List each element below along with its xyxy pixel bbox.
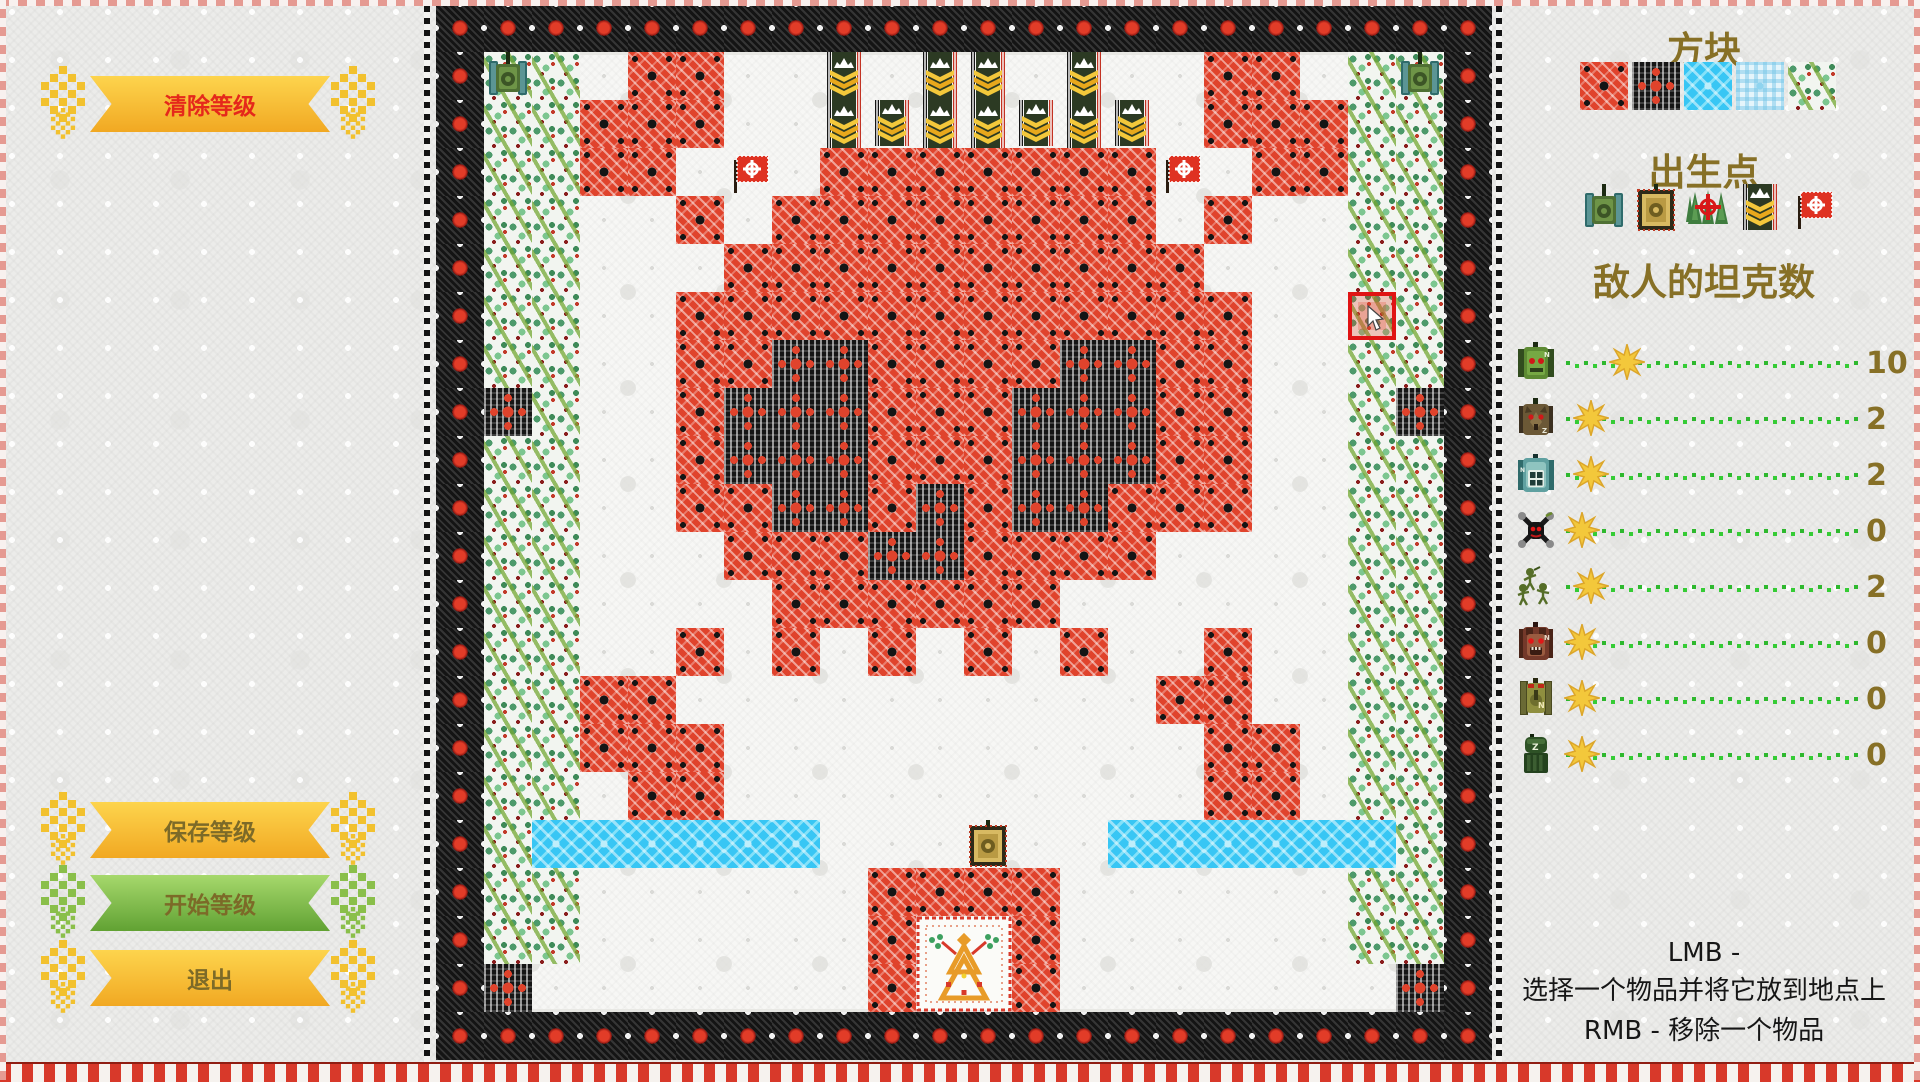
trees-tile[interactable]: [1396, 148, 1444, 196]
brick-tile[interactable]: [868, 580, 916, 628]
steel-tile[interactable]: [1108, 436, 1156, 484]
brick-tile[interactable]: [1156, 676, 1204, 724]
brick-tile[interactable]: [868, 628, 916, 676]
svg-text:N: N: [1544, 634, 1550, 642]
banner-short-sprite[interactable]: [1012, 100, 1060, 148]
water-tile[interactable]: [1300, 820, 1348, 868]
brick-tile[interactable]: [1060, 628, 1108, 676]
brick-tile[interactable]: [1012, 340, 1060, 388]
brick-tile[interactable]: [724, 244, 772, 292]
block-palette: [1580, 62, 1836, 110]
brick-tile[interactable]: [1012, 964, 1060, 1012]
brick-tile[interactable]: [868, 388, 916, 436]
brick-tile[interactable]: [916, 436, 964, 484]
brick-tile[interactable]: [1108, 292, 1156, 340]
trees-tile[interactable]: [1348, 868, 1396, 916]
steel-tile[interactable]: [916, 532, 964, 580]
brick-tile[interactable]: [772, 532, 820, 580]
enemy-row-teal-tank: N2: [1516, 452, 1916, 500]
trees-tile[interactable]: [1396, 820, 1444, 868]
steel-tile[interactable]: [1396, 964, 1444, 1012]
brick-tile[interactable]: [1012, 580, 1060, 628]
banner-tall-sprite[interactable]: [964, 52, 1012, 152]
brick-tile[interactable]: [772, 292, 820, 340]
water-tile[interactable]: [1156, 820, 1204, 868]
brick-tile[interactable]: [1204, 676, 1252, 724]
spawn-icon-ally-tank[interactable]: [1632, 184, 1680, 232]
brick-tile[interactable]: [1300, 148, 1348, 196]
enemy-count-slider[interactable]: [1566, 417, 1858, 424]
trees-tile[interactable]: [1348, 388, 1396, 436]
brick-tile[interactable]: [724, 292, 772, 340]
brick-tile[interactable]: [868, 340, 916, 388]
brick-tile[interactable]: [1012, 532, 1060, 580]
brick-tile[interactable]: [868, 196, 916, 244]
spawn-icon-banner[interactable]: [1736, 184, 1784, 232]
brick-tile[interactable]: [628, 772, 676, 820]
brick-tile[interactable]: [1156, 340, 1204, 388]
steel-tile[interactable]: [1060, 388, 1108, 436]
brick-tile[interactable]: [820, 532, 868, 580]
trees-tile[interactable]: [532, 100, 580, 148]
brick-tile[interactable]: [1060, 292, 1108, 340]
trees-tile[interactable]: [532, 484, 580, 532]
palette-tile-steel[interactable]: [1632, 62, 1680, 110]
brick-tile[interactable]: [820, 292, 868, 340]
trees-tile[interactable]: [1348, 196, 1396, 244]
trees-tile[interactable]: [1348, 628, 1396, 676]
steel-tile[interactable]: [1012, 388, 1060, 436]
brick-tile[interactable]: [820, 244, 868, 292]
trees-tile[interactable]: [532, 724, 580, 772]
slider-star-handle[interactable]: [1609, 344, 1645, 380]
brick-tile[interactable]: [676, 628, 724, 676]
trees-tile[interactable]: [1396, 580, 1444, 628]
trees-tile[interactable]: [1396, 100, 1444, 148]
trees-tile[interactable]: [484, 484, 532, 532]
flag-sprite[interactable]: [724, 148, 772, 196]
enemy-icon-bear-tank: N: [1516, 622, 1556, 662]
brick-tile[interactable]: [1252, 100, 1300, 148]
brick-tile[interactable]: [676, 436, 724, 484]
brick-tile[interactable]: [580, 148, 628, 196]
brick-tile[interactable]: [1252, 772, 1300, 820]
brick-tile[interactable]: [964, 532, 1012, 580]
map-border-left: [436, 4, 484, 1060]
brick-tile[interactable]: [1204, 484, 1252, 532]
brick-tile[interactable]: [964, 868, 1012, 916]
trees-tile[interactable]: [532, 148, 580, 196]
brick-tile[interactable]: [964, 388, 1012, 436]
brick-tile[interactable]: [820, 148, 868, 196]
brick-tile[interactable]: [868, 148, 916, 196]
brick-tile[interactable]: [964, 580, 1012, 628]
steel-tile[interactable]: [1060, 436, 1108, 484]
steel-tile[interactable]: [772, 484, 820, 532]
trees-tile[interactable]: [1396, 868, 1444, 916]
svg-text:N: N: [1538, 701, 1545, 710]
brick-tile[interactable]: [1252, 148, 1300, 196]
trees-tile[interactable]: [532, 436, 580, 484]
brick-tile[interactable]: [1156, 484, 1204, 532]
water-tile[interactable]: [628, 820, 676, 868]
enemy-count-value: 2: [1866, 402, 1887, 437]
trees-tile[interactable]: [484, 868, 532, 916]
slider-star: [1574, 401, 1609, 436]
trees-tile[interactable]: [532, 52, 580, 100]
brick-tile[interactable]: [964, 484, 1012, 532]
brick-tile[interactable]: [628, 724, 676, 772]
trees-tile[interactable]: [484, 292, 532, 340]
trees-tile[interactable]: [484, 580, 532, 628]
slider-star: [1565, 513, 1600, 548]
brick-tile[interactable]: [1012, 292, 1060, 340]
flag-sprite[interactable]: [1156, 148, 1204, 196]
brick-tile[interactable]: [1108, 148, 1156, 196]
trees-tile[interactable]: [484, 772, 532, 820]
brick-tile[interactable]: [964, 340, 1012, 388]
brick-tile[interactable]: [1156, 292, 1204, 340]
slider-star-handle[interactable]: [1573, 400, 1609, 436]
brick-tile[interactable]: [1204, 628, 1252, 676]
brick-tile[interactable]: [868, 244, 916, 292]
trees-tile[interactable]: [484, 148, 532, 196]
brick-tile[interactable]: [1060, 532, 1108, 580]
brick-tile[interactable]: [724, 532, 772, 580]
level-canvas[interactable]: [484, 52, 1444, 1012]
trees-tile[interactable]: [1396, 244, 1444, 292]
trees-tile[interactable]: [532, 340, 580, 388]
brick-tile[interactable]: [1156, 244, 1204, 292]
map-border-bottom: [436, 1012, 1492, 1060]
brick-tile[interactable]: [1060, 244, 1108, 292]
water-tile[interactable]: [1252, 820, 1300, 868]
brick-tile[interactable]: [916, 340, 964, 388]
pixel-star-decoration: [330, 940, 376, 1016]
pixel-star-decoration: [40, 66, 86, 142]
water-tile[interactable]: [580, 820, 628, 868]
brick-tile[interactable]: [676, 196, 724, 244]
steel-tile[interactable]: [820, 484, 868, 532]
steel-tile[interactable]: [820, 340, 868, 388]
steel-tile[interactable]: [1012, 484, 1060, 532]
steel-tile[interactable]: [772, 436, 820, 484]
steel-tile[interactable]: [1108, 388, 1156, 436]
trees-tile[interactable]: [484, 100, 532, 148]
brick-tile[interactable]: [1012, 196, 1060, 244]
spawn-icon-flag[interactable]: [1788, 184, 1836, 232]
trees-tile[interactable]: [484, 532, 532, 580]
steel-tile[interactable]: [772, 340, 820, 388]
trees-tile[interactable]: [532, 196, 580, 244]
brick-tile[interactable]: [916, 388, 964, 436]
enemy-count-value: 10: [1866, 346, 1908, 381]
brick-tile[interactable]: [772, 244, 820, 292]
brick-tile[interactable]: [820, 196, 868, 244]
trees-tile[interactable]: [484, 340, 532, 388]
brick-tile[interactable]: [868, 964, 916, 1012]
brick-tile[interactable]: [916, 292, 964, 340]
trees-tile[interactable]: [1348, 916, 1396, 964]
brick-tile[interactable]: [916, 196, 964, 244]
brick-tile[interactable]: [676, 340, 724, 388]
brick-tile[interactable]: [676, 772, 724, 820]
brick-tile[interactable]: [580, 100, 628, 148]
enemy-count-slider[interactable]: [1566, 641, 1858, 648]
brick-tile[interactable]: [676, 724, 724, 772]
brick-tile[interactable]: [916, 868, 964, 916]
brick-tile[interactable]: [676, 388, 724, 436]
brick-tile[interactable]: [1204, 772, 1252, 820]
trees-tile[interactable]: [484, 628, 532, 676]
brick-tile[interactable]: [1204, 196, 1252, 244]
water-tile[interactable]: [1348, 820, 1396, 868]
palette-tile-water[interactable]: [1684, 62, 1732, 110]
steel-tile[interactable]: [1396, 388, 1444, 436]
slider-star: [1565, 625, 1600, 660]
start-level-button[interactable]: 开始等级: [90, 875, 330, 931]
trees-tile[interactable]: [1348, 580, 1396, 628]
banner-tall-sprite[interactable]: [916, 52, 964, 152]
enemy-icon-teal-tank: N: [1516, 454, 1556, 494]
brick-tile[interactable]: [1156, 436, 1204, 484]
brick-tile[interactable]: [820, 580, 868, 628]
brick-tile[interactable]: [1252, 724, 1300, 772]
trees-tile[interactable]: [1348, 532, 1396, 580]
steel-tile[interactable]: [1060, 484, 1108, 532]
trees-tile[interactable]: [1348, 244, 1396, 292]
slider-star-handle[interactable]: [1564, 736, 1600, 772]
brick-tile[interactable]: [772, 196, 820, 244]
brick-tile[interactable]: [964, 148, 1012, 196]
trees-tile[interactable]: [1396, 724, 1444, 772]
trees-tile[interactable]: [532, 388, 580, 436]
slider-star-handle[interactable]: [1564, 624, 1600, 660]
trees-tile[interactable]: [1348, 148, 1396, 196]
slider-star: [1574, 569, 1609, 604]
brick-tile[interactable]: [1156, 388, 1204, 436]
enemy-count-slider[interactable]: [1566, 585, 1858, 592]
brick-tile[interactable]: [1108, 532, 1156, 580]
trees-tile[interactable]: [1396, 772, 1444, 820]
trees-tile[interactable]: [1348, 436, 1396, 484]
trees-tile[interactable]: [1348, 676, 1396, 724]
brick-tile[interactable]: [676, 52, 724, 100]
enemy-count-value: 0: [1866, 626, 1887, 661]
brick-tile[interactable]: [1252, 52, 1300, 100]
trees-tile[interactable]: [484, 724, 532, 772]
brick-tile[interactable]: [580, 676, 628, 724]
spawn-icon-player-tank[interactable]: [1580, 184, 1628, 232]
banner-tall-sprite[interactable]: [820, 52, 868, 152]
trees-tile[interactable]: [1348, 100, 1396, 148]
brick-tile[interactable]: [964, 196, 1012, 244]
brick-tile[interactable]: [1204, 436, 1252, 484]
palette-tile-brick[interactable]: [1580, 62, 1628, 110]
brick-tile[interactable]: [1204, 340, 1252, 388]
steel-tile[interactable]: [1108, 340, 1156, 388]
steel-tile[interactable]: [772, 388, 820, 436]
trees-tile[interactable]: [532, 628, 580, 676]
page-border-bottom: [0, 1062, 1920, 1082]
trees-tile[interactable]: [484, 820, 532, 868]
brick-tile[interactable]: [1108, 196, 1156, 244]
water-tile[interactable]: [1204, 820, 1252, 868]
trees-tile[interactable]: [1396, 676, 1444, 724]
trees-tile[interactable]: [1348, 724, 1396, 772]
brick-tile[interactable]: [964, 292, 1012, 340]
map-left-seam: [424, 0, 430, 1080]
trees-tile[interactable]: [1348, 772, 1396, 820]
trees-tile[interactable]: [1396, 628, 1444, 676]
brick-tile[interactable]: [628, 100, 676, 148]
steel-tile[interactable]: [868, 532, 916, 580]
brick-tile[interactable]: [772, 580, 820, 628]
enemy-count-title: 敌人的坦克数: [1500, 252, 1908, 306]
trees-tile[interactable]: [532, 916, 580, 964]
emblem-sprite[interactable]: [916, 916, 1012, 1012]
trees-tile[interactable]: [1348, 340, 1396, 388]
banner-tall-sprite[interactable]: [1060, 52, 1108, 152]
enemy-icon-infantry: [1516, 566, 1556, 606]
slider-star-handle[interactable]: [1564, 680, 1600, 716]
enemy-count-value: 2: [1866, 570, 1887, 605]
brick-tile[interactable]: [1108, 484, 1156, 532]
steel-tile[interactable]: [1012, 436, 1060, 484]
brick-tile[interactable]: [1012, 916, 1060, 964]
trees-tile[interactable]: [1396, 484, 1444, 532]
exit-button[interactable]: 退出: [90, 950, 330, 1006]
steel-tile[interactable]: [820, 388, 868, 436]
trees-tile[interactable]: [532, 772, 580, 820]
brick-tile[interactable]: [868, 436, 916, 484]
brick-tile[interactable]: [1204, 100, 1252, 148]
trees-tile[interactable]: [532, 676, 580, 724]
trees-tile[interactable]: [532, 580, 580, 628]
water-tile[interactable]: [724, 820, 772, 868]
brick-tile[interactable]: [628, 676, 676, 724]
pixel-star-decoration: [40, 940, 86, 1016]
brick-tile[interactable]: [1204, 724, 1252, 772]
brick-tile[interactable]: [916, 244, 964, 292]
player-tank-sprite[interactable]: [1396, 52, 1444, 100]
brick-tile[interactable]: [1204, 52, 1252, 100]
brick-tile[interactable]: [676, 484, 724, 532]
brick-tile[interactable]: [916, 148, 964, 196]
enemy-row-bear-tank: N0: [1516, 620, 1916, 668]
start-level-label: 开始等级: [164, 886, 256, 920]
trees-tile[interactable]: [1396, 532, 1444, 580]
trees-tile[interactable]: [1348, 52, 1396, 100]
trees-tile[interactable]: [484, 196, 532, 244]
brick-tile[interactable]: [628, 52, 676, 100]
water-tile[interactable]: [676, 820, 724, 868]
brick-tile[interactable]: [1204, 388, 1252, 436]
enemy-count-slider[interactable]: [1566, 753, 1858, 760]
brick-tile[interactable]: [724, 484, 772, 532]
trees-tile[interactable]: [484, 244, 532, 292]
slider-star-handle[interactable]: [1573, 568, 1609, 604]
brick-tile[interactable]: [676, 100, 724, 148]
brick-tile[interactable]: [964, 244, 1012, 292]
trees-tile[interactable]: [1396, 916, 1444, 964]
trees-tile[interactable]: [532, 868, 580, 916]
enemy-count-slider[interactable]: [1566, 473, 1858, 480]
brick-tile[interactable]: [916, 580, 964, 628]
trees-tile[interactable]: [532, 244, 580, 292]
player-tank-sprite[interactable]: [484, 52, 532, 100]
enemy-count-slider[interactable]: [1566, 529, 1858, 536]
water-tile[interactable]: [772, 820, 820, 868]
instruction-rmb: RMB - 移除一个物品: [1500, 1010, 1908, 1047]
brick-tile[interactable]: [1012, 148, 1060, 196]
steel-tile[interactable]: [484, 964, 532, 1012]
brick-tile[interactable]: [676, 292, 724, 340]
trees-tile[interactable]: [532, 292, 580, 340]
steel-tile[interactable]: [484, 388, 532, 436]
brick-tile[interactable]: [1204, 292, 1252, 340]
save-level-button[interactable]: 保存等级: [90, 802, 330, 858]
trees-tile[interactable]: [532, 532, 580, 580]
brick-tile[interactable]: [1060, 148, 1108, 196]
ally-tank-sprite[interactable]: [964, 820, 1012, 868]
page-border-left: [0, 0, 6, 1080]
trees-tile[interactable]: [1396, 196, 1444, 244]
trees-tile[interactable]: [1396, 340, 1444, 388]
brick-tile[interactable]: [868, 292, 916, 340]
water-tile[interactable]: [532, 820, 580, 868]
banner-short-sprite[interactable]: [1108, 100, 1156, 148]
clear-level-button[interactable]: 清除等级: [90, 76, 330, 132]
brick-tile[interactable]: [1012, 244, 1060, 292]
brick-tile[interactable]: [628, 148, 676, 196]
steel-tile[interactable]: [1060, 340, 1108, 388]
brick-tile[interactable]: [964, 628, 1012, 676]
banner-short-sprite[interactable]: [868, 100, 916, 148]
slider-star-handle[interactable]: [1573, 456, 1609, 492]
trees-tile[interactable]: [1396, 436, 1444, 484]
palette-tile-ice[interactable]: [1736, 62, 1784, 110]
brick-tile[interactable]: [1060, 196, 1108, 244]
water-tile[interactable]: [1108, 820, 1156, 868]
steel-tile[interactable]: [724, 388, 772, 436]
spawn-icon-trees-target[interactable]: [1684, 184, 1732, 232]
map-border-right: [1444, 4, 1492, 1060]
enemy-row-green-monster-tank: N10: [1516, 340, 1916, 388]
palette-tile-trees[interactable]: [1788, 62, 1836, 110]
steel-tile[interactable]: [820, 436, 868, 484]
steel-tile[interactable]: [724, 436, 772, 484]
trees-tile[interactable]: [1348, 484, 1396, 532]
brick-tile[interactable]: [1300, 100, 1348, 148]
brick-tile[interactable]: [1012, 868, 1060, 916]
steel-tile[interactable]: [916, 484, 964, 532]
trees-tile[interactable]: [484, 916, 532, 964]
brick-tile[interactable]: [868, 916, 916, 964]
brick-tile[interactable]: [868, 868, 916, 916]
brick-tile[interactable]: [964, 436, 1012, 484]
brick-tile[interactable]: [580, 724, 628, 772]
brick-tile[interactable]: [772, 628, 820, 676]
trees-tile[interactable]: [1396, 292, 1444, 340]
brick-tile[interactable]: [868, 484, 916, 532]
slider-star-handle[interactable]: [1564, 512, 1600, 548]
enemy-count-slider[interactable]: [1566, 697, 1858, 704]
trees-tile[interactable]: [484, 436, 532, 484]
trees-tile[interactable]: [484, 676, 532, 724]
brick-tile[interactable]: [1108, 244, 1156, 292]
brick-tile[interactable]: [724, 340, 772, 388]
